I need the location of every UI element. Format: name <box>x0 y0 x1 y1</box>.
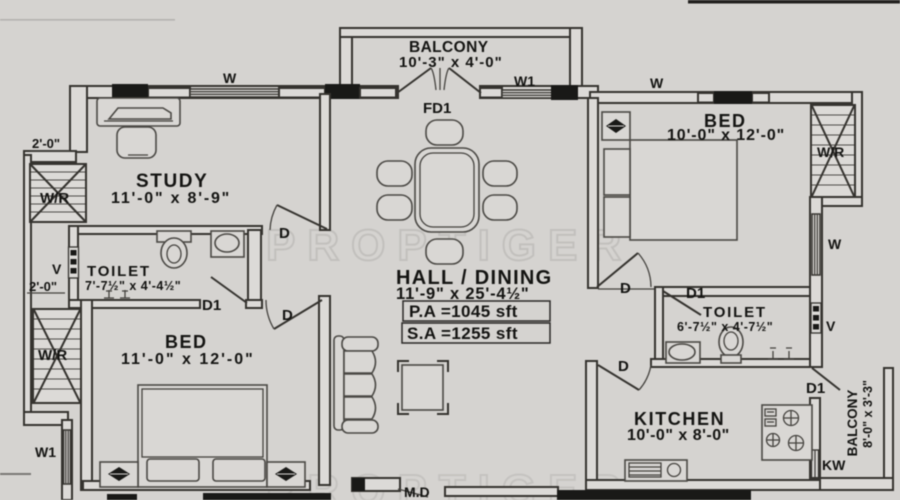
svg-text:V: V <box>826 318 836 334</box>
svg-text:11'-0" x 12'-0": 11'-0" x 12'-0" <box>121 351 255 368</box>
svg-text:S.A =1255 sft: S.A =1255 sft <box>407 324 518 343</box>
svg-text:KW: KW <box>822 457 846 473</box>
svg-text:BALCONY: BALCONY <box>845 390 860 457</box>
svg-text:W: W <box>828 236 842 252</box>
svg-text:KITCHEN: KITCHEN <box>634 409 725 429</box>
svg-text:W: W <box>650 75 664 91</box>
svg-text:TOILET: TOILET <box>703 304 767 321</box>
svg-text:11'-0" x 8'-9": 11'-0" x 8'-9" <box>111 190 231 207</box>
svg-text:TOILET: TOILET <box>87 263 151 280</box>
svg-text:6'-7½" x 4'-7½": 6'-7½" x 4'-7½" <box>677 320 773 334</box>
svg-text:D1: D1 <box>806 380 825 397</box>
svg-text:BED: BED <box>165 332 208 352</box>
svg-text:D: D <box>279 225 290 242</box>
svg-text:D: D <box>282 307 293 324</box>
svg-text:W/R: W/R <box>817 144 844 160</box>
svg-text:W1: W1 <box>514 73 535 89</box>
svg-text:STUDY: STUDY <box>136 171 208 192</box>
svg-text:D: D <box>620 280 631 297</box>
svg-text:D1: D1 <box>686 285 705 302</box>
svg-text:W1: W1 <box>35 444 56 460</box>
svg-text:FD1: FD1 <box>423 100 451 117</box>
svg-text:2'-0": 2'-0" <box>32 136 60 151</box>
svg-text:10'-3" x 4'-0": 10'-3" x 4'-0" <box>399 54 503 71</box>
svg-text:P.A =1045 sft: P.A =1045 sft <box>409 302 518 321</box>
svg-text:10'-0" x 12'-0": 10'-0" x 12'-0" <box>667 127 785 144</box>
svg-text:W/R: W/R <box>38 347 67 364</box>
svg-text:D1: D1 <box>202 297 221 314</box>
svg-text:D: D <box>618 358 629 375</box>
svg-text:W: W <box>223 70 237 86</box>
svg-text:10'-0" x 8'-0": 10'-0" x 8'-0" <box>627 427 730 444</box>
svg-text:2'-0": 2'-0" <box>29 279 57 294</box>
svg-text:M.D: M.D <box>404 484 430 500</box>
svg-text:W/R: W/R <box>40 190 69 207</box>
svg-text:8'-0" x 3'-3": 8'-0" x 3'-3" <box>861 380 875 448</box>
svg-text:V: V <box>52 261 62 277</box>
svg-text:7'-7½" x 4'-4½": 7'-7½" x 4'-4½" <box>85 279 181 293</box>
